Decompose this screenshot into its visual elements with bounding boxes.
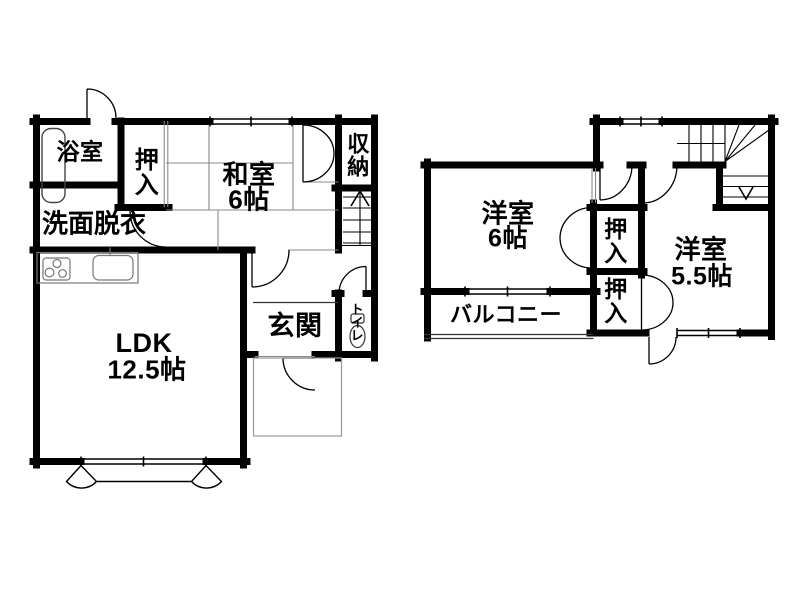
floor-plan-drawing bbox=[0, 0, 800, 600]
sink bbox=[93, 256, 133, 281]
burner bbox=[45, 268, 54, 277]
room-label-bath: 浴室 bbox=[57, 140, 104, 163]
room-size-japanese-room: 6帖 bbox=[228, 187, 269, 214]
room-label-entrance: 玄関 bbox=[268, 313, 323, 341]
doors bbox=[87, 89, 677, 390]
room-label-closet-1f: 押入 bbox=[131, 147, 155, 197]
room-label-closet-2f-upper: 押入 bbox=[601, 217, 624, 265]
entrance-porch bbox=[254, 358, 342, 436]
stairs-floor1 bbox=[339, 188, 375, 246]
room-label-toilet: トイレ bbox=[349, 303, 362, 342]
floor-plan: 浴室 押入 和室 6帖 収納 洗面脱衣 LDK 12.5帖 玄関 トイレ 洋室 … bbox=[0, 0, 800, 600]
walls-floor1 bbox=[33, 118, 375, 465]
room-label-storage: 収納 bbox=[345, 132, 367, 178]
room-label-washroom: 洗面脱衣 bbox=[42, 211, 146, 238]
kitchen-counter bbox=[37, 248, 138, 284]
room-size-western-room-6: 6帖 bbox=[488, 226, 528, 252]
window-shutter-symbols bbox=[67, 466, 222, 489]
room-label-closet-2f-lower: 押入 bbox=[601, 277, 624, 325]
burner bbox=[59, 270, 67, 278]
room-size-ldk: 12.5帖 bbox=[107, 357, 186, 384]
burner bbox=[53, 260, 61, 268]
room-label-western-room-55: 洋室 bbox=[674, 237, 727, 264]
room-label-ldk: LDK bbox=[116, 330, 173, 358]
balcony-railing bbox=[424, 335, 594, 339]
room-label-balcony: バルコニー bbox=[450, 304, 562, 326]
room-size-western-room-55: 5.5帖 bbox=[671, 264, 733, 290]
